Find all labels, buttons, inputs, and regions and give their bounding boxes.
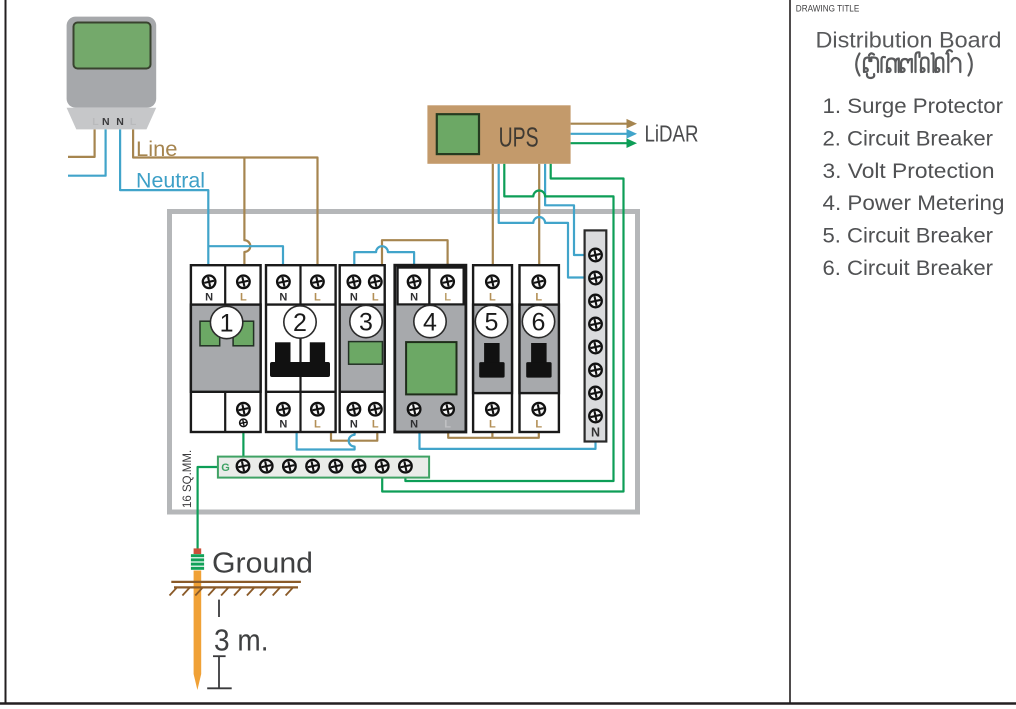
svg-text:L: L: [444, 419, 451, 431]
svg-text:6: 6: [532, 308, 546, 336]
svg-text:L: L: [240, 292, 247, 304]
svg-text:L: L: [444, 292, 451, 304]
svg-text:L: L: [314, 419, 321, 431]
svg-text:N: N: [102, 116, 110, 128]
svg-text:1. Surge Protector: 1. Surge Protector: [823, 95, 1004, 118]
svg-text:G: G: [221, 462, 230, 474]
svg-text:3: 3: [359, 308, 373, 336]
svg-text:UPS: UPS: [499, 122, 539, 153]
svg-text:L: L: [130, 116, 137, 128]
svg-text:Neutral: Neutral: [136, 170, 205, 193]
svg-text:N: N: [350, 419, 358, 431]
svg-text:L: L: [489, 419, 496, 431]
svg-text:16 SQ.MM.: 16 SQ.MM.: [182, 450, 194, 508]
svg-text:N: N: [116, 116, 124, 128]
svg-text:Line: Line: [136, 138, 178, 161]
svg-text:N: N: [410, 419, 418, 431]
svg-text:L: L: [535, 292, 542, 304]
svg-text:1: 1: [220, 309, 234, 337]
svg-text:2. Circuit Breaker: 2. Circuit Breaker: [823, 127, 994, 150]
svg-text:2: 2: [293, 309, 307, 337]
svg-text:N: N: [279, 419, 287, 431]
svg-text:5. Circuit Breaker: 5. Circuit Breaker: [823, 225, 994, 248]
svg-text:L: L: [314, 292, 321, 304]
svg-text:L: L: [372, 292, 379, 304]
svg-text:3. Volt Protection: 3. Volt Protection: [823, 160, 995, 183]
svg-text:5: 5: [485, 308, 499, 336]
svg-text:N: N: [591, 426, 600, 440]
svg-text:4: 4: [423, 308, 437, 336]
svg-text:LiDAR: LiDAR: [645, 121, 699, 147]
svg-text:N: N: [205, 292, 213, 304]
svg-text:4. Power Metering: 4. Power Metering: [823, 192, 1005, 215]
svg-text:L: L: [489, 292, 496, 304]
svg-text:Ground: Ground: [212, 548, 313, 580]
svg-text:DRAWING TITLE: DRAWING TITLE: [796, 3, 860, 14]
svg-text:L: L: [372, 419, 379, 431]
svg-text:Distribution Board: Distribution Board: [816, 27, 1002, 52]
svg-text:N: N: [410, 292, 418, 304]
svg-text:N: N: [279, 292, 287, 304]
svg-text:L: L: [535, 419, 542, 431]
svg-text:N: N: [350, 292, 358, 304]
svg-text:L: L: [92, 116, 99, 128]
svg-text:6. Circuit Breaker: 6. Circuit Breaker: [823, 257, 994, 280]
svg-text:3 m.: 3 m.: [214, 624, 269, 658]
